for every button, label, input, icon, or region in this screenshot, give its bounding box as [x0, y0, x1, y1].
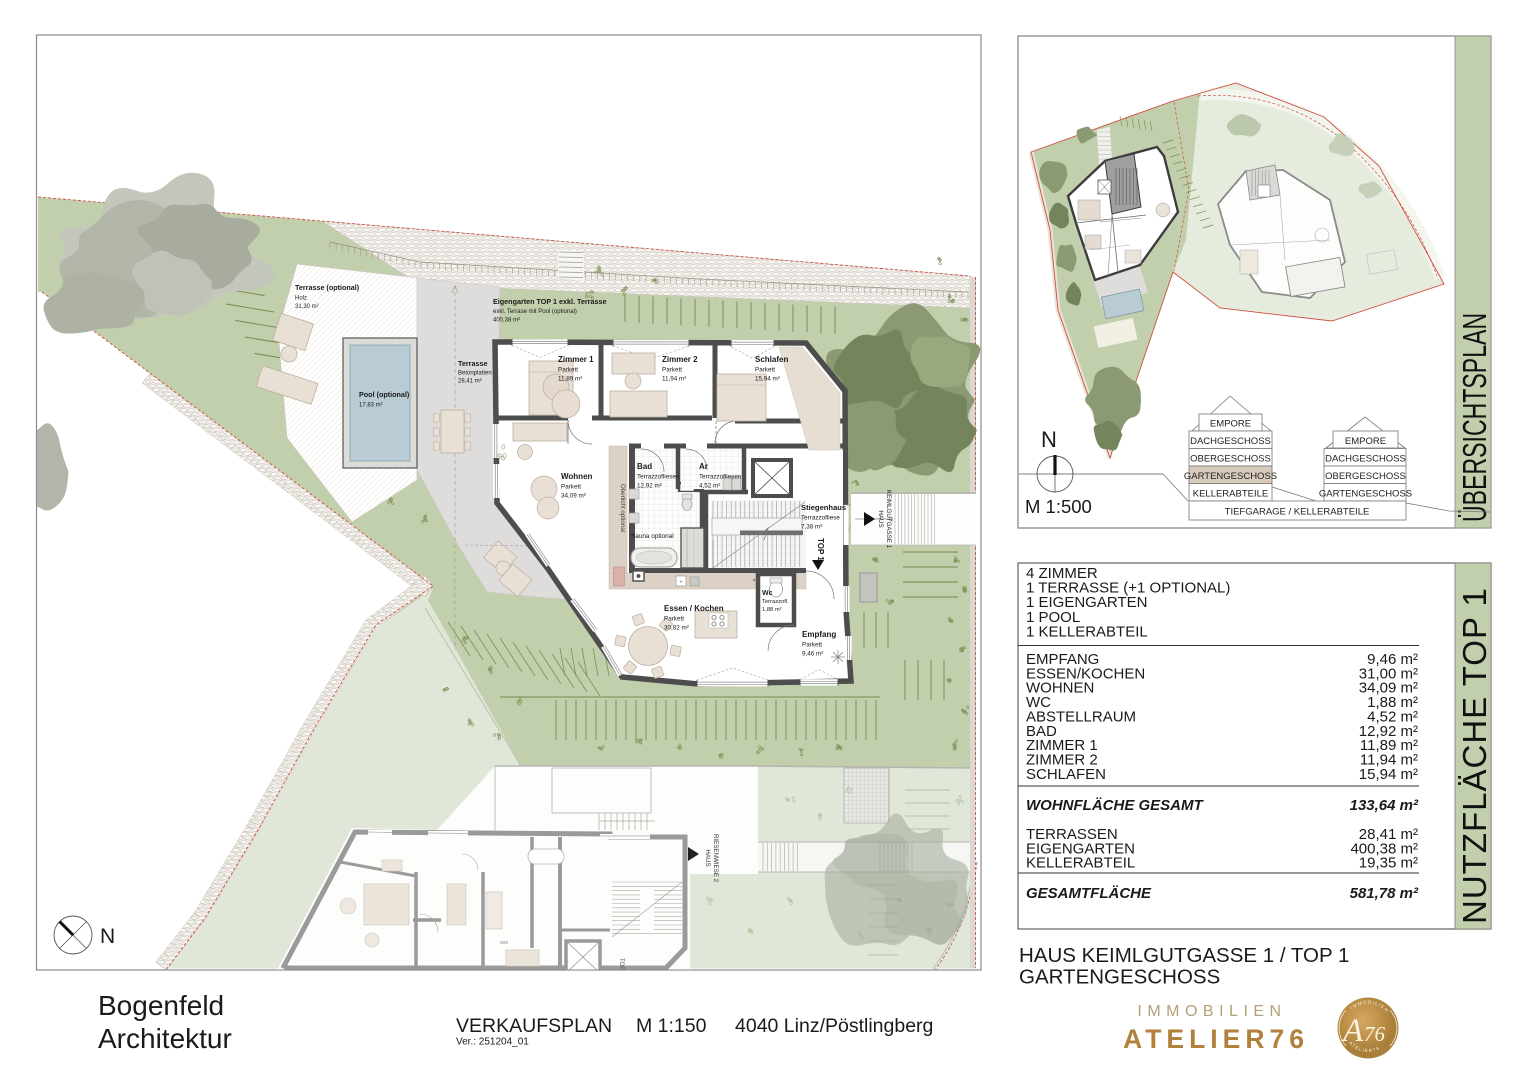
svg-text:KELLERABTEIL: KELLERABTEIL — [1026, 855, 1135, 872]
svg-text:Holz: Holz — [295, 296, 307, 302]
svg-text:Bogenfeld: Bogenfeld — [98, 990, 224, 1021]
svg-text:HAUS KEIMLGUTGASSE 1 / TOP 1: HAUS KEIMLGUTGASSE 1 / TOP 1 — [1019, 944, 1349, 967]
svg-text:Empfang: Empfang — [802, 630, 836, 639]
svg-text:Parkett: Parkett — [558, 367, 578, 374]
svg-text:11,89 m²: 11,89 m² — [558, 376, 582, 383]
svg-text:Terrazzofliese: Terrazzofliese — [801, 515, 840, 522]
svg-text:Essen / Kochen: Essen / Kochen — [664, 604, 724, 613]
svg-text:+: + — [679, 580, 683, 586]
svg-text:15,94 m²: 15,94 m² — [755, 376, 780, 383]
svg-text:DACHGESCHOSS: DACHGESCHOSS — [1190, 436, 1271, 447]
svg-text:Parkett: Parkett — [755, 367, 775, 374]
svg-text:Ar: Ar — [699, 462, 708, 471]
svg-text:TOP: TOP — [618, 958, 624, 970]
svg-text:1 KELLERABTEIL: 1 KELLERABTEIL — [1026, 623, 1148, 640]
svg-text:Zimmer 1: Zimmer 1 — [558, 355, 594, 364]
svg-text:EMPORE: EMPORE — [1210, 419, 1251, 430]
svg-text:TOP 1: TOP 1 — [816, 538, 825, 561]
svg-text:Parkett: Parkett — [802, 642, 822, 649]
svg-text:GESAMTFLÄCHE: GESAMTFLÄCHE — [1026, 885, 1152, 902]
svg-text:Ver.: 251204_01: Ver.: 251204_01 — [456, 1037, 529, 1048]
svg-text:N: N — [100, 925, 115, 948]
svg-text:34,09 m²: 34,09 m² — [561, 493, 586, 500]
svg-text:VERKAUFSPLAN: VERKAUFSPLAN — [456, 1015, 612, 1037]
svg-text:Parkett: Parkett — [664, 616, 684, 623]
svg-text:Terrazzofliesen: Terrazzofliesen — [699, 474, 742, 481]
svg-text:HAUS: HAUS — [877, 510, 884, 527]
svg-text:TIEFGARAGE / KELLERABTEILE: TIEFGARAGE / KELLERABTEILE — [1225, 507, 1370, 518]
svg-text:9,46 m²: 9,46 m² — [802, 651, 823, 658]
svg-text:M 1:500: M 1:500 — [1025, 496, 1092, 517]
svg-text:SCHLAFEN: SCHLAFEN — [1026, 766, 1106, 783]
svg-text:OBERGESCHOSS: OBERGESCHOSS — [1325, 471, 1406, 482]
svg-text:15,94 m²: 15,94 m² — [1359, 766, 1418, 783]
svg-text:4040 Linz/Pöstlingberg: 4040 Linz/Pöstlingberg — [735, 1015, 933, 1037]
svg-text:Wc: Wc — [762, 590, 773, 597]
svg-text:581,78 m²: 581,78 m² — [1350, 885, 1419, 902]
svg-text:Stiegenhaus: Stiegenhaus — [801, 503, 846, 512]
svg-text:17,83 m²: 17,83 m² — [359, 403, 383, 409]
svg-text:Parkett: Parkett — [561, 484, 581, 491]
svg-text:WOHNFLÄCHE GESAMT: WOHNFLÄCHE GESAMT — [1026, 797, 1204, 814]
svg-text:IMMOBILIEN: IMMOBILIEN — [1137, 1003, 1286, 1020]
svg-text:4,52 m²: 4,52 m² — [699, 483, 720, 490]
svg-text:76: 76 — [1364, 1022, 1386, 1046]
svg-text:exkl. Terrase mit Pool (option: exkl. Terrase mit Pool (optional) — [493, 309, 577, 315]
svg-text:Sauna optional: Sauna optional — [631, 533, 674, 540]
svg-text:RIESENWIESE 2: RIESENWIESE 2 — [712, 834, 719, 883]
svg-text:Terrazzofl.: Terrazzofl. — [762, 599, 789, 605]
svg-text:N: N — [1041, 427, 1057, 452]
svg-text:Terrasse (optional): Terrasse (optional) — [295, 283, 360, 292]
svg-text:12,92 m²: 12,92 m² — [637, 483, 662, 490]
svg-text:Zimmer 2: Zimmer 2 — [662, 355, 698, 364]
svg-text:Parkett: Parkett — [662, 367, 682, 374]
svg-text:NUTZFLÄCHE TOP 1: NUTZFLÄCHE TOP 1 — [1456, 587, 1493, 924]
svg-text:Pool (optional): Pool (optional) — [359, 390, 410, 399]
svg-text:11,94 m²: 11,94 m² — [662, 376, 686, 383]
svg-text:OBERGESCHOSS: OBERGESCHOSS — [1190, 453, 1271, 464]
svg-text:7,38 m²: 7,38 m² — [801, 524, 822, 531]
svg-text:KELLERABTEILE: KELLERABTEILE — [1193, 488, 1269, 499]
svg-text:Betonplatten: Betonplatten — [458, 371, 492, 377]
svg-text:DACHGESCHOSS: DACHGESCHOSS — [1325, 453, 1406, 464]
svg-text:Eigengarten TOP 1 exkl. Terras: Eigengarten TOP 1 exkl. Terrasse — [493, 297, 606, 306]
svg-text:133,64 m²: 133,64 m² — [1350, 797, 1419, 814]
svg-text:Terrazzofliesen: Terrazzofliesen — [637, 474, 680, 481]
svg-text:31,30 m²: 31,30 m² — [295, 304, 319, 310]
svg-text:EMPORE: EMPORE — [1345, 436, 1386, 447]
svg-text:1,88 m²: 1,88 m² — [762, 607, 782, 613]
svg-text:ATELIER76: ATELIER76 — [1123, 1024, 1309, 1054]
svg-text:400,38 m²: 400,38 m² — [493, 318, 520, 324]
svg-text:Schlafen: Schlafen — [755, 355, 788, 364]
svg-text:GARTENGESCHOSS: GARTENGESCHOSS — [1319, 488, 1412, 499]
svg-text:GARTENGESCHOSS: GARTENGESCHOSS — [1184, 471, 1277, 482]
svg-text:Bad: Bad — [637, 462, 652, 471]
svg-text:Architektur: Architektur — [98, 1023, 232, 1054]
svg-text:28,41 m²: 28,41 m² — [458, 379, 482, 385]
svg-text:HAUS: HAUS — [704, 849, 711, 866]
svg-text:19,35 m²: 19,35 m² — [1359, 855, 1418, 872]
svg-text:GARTENGESCHOSS: GARTENGESCHOSS — [1019, 966, 1220, 989]
svg-text:WM: WM — [500, 940, 508, 945]
svg-text:30,82 m²: 30,82 m² — [664, 625, 689, 632]
svg-text:M 1:150: M 1:150 — [636, 1015, 707, 1037]
svg-text:ÜBERSICHTSPLAN: ÜBERSICHTSPLAN — [1457, 313, 1494, 522]
svg-text:Oberlicht optional: Oberlicht optional — [619, 484, 626, 532]
svg-text:Wohnen: Wohnen — [561, 472, 593, 481]
svg-text:Terrasse: Terrasse — [458, 359, 487, 368]
svg-text:KEIMLGUTGASSE 1: KEIMLGUTGASSE 1 — [885, 490, 892, 549]
